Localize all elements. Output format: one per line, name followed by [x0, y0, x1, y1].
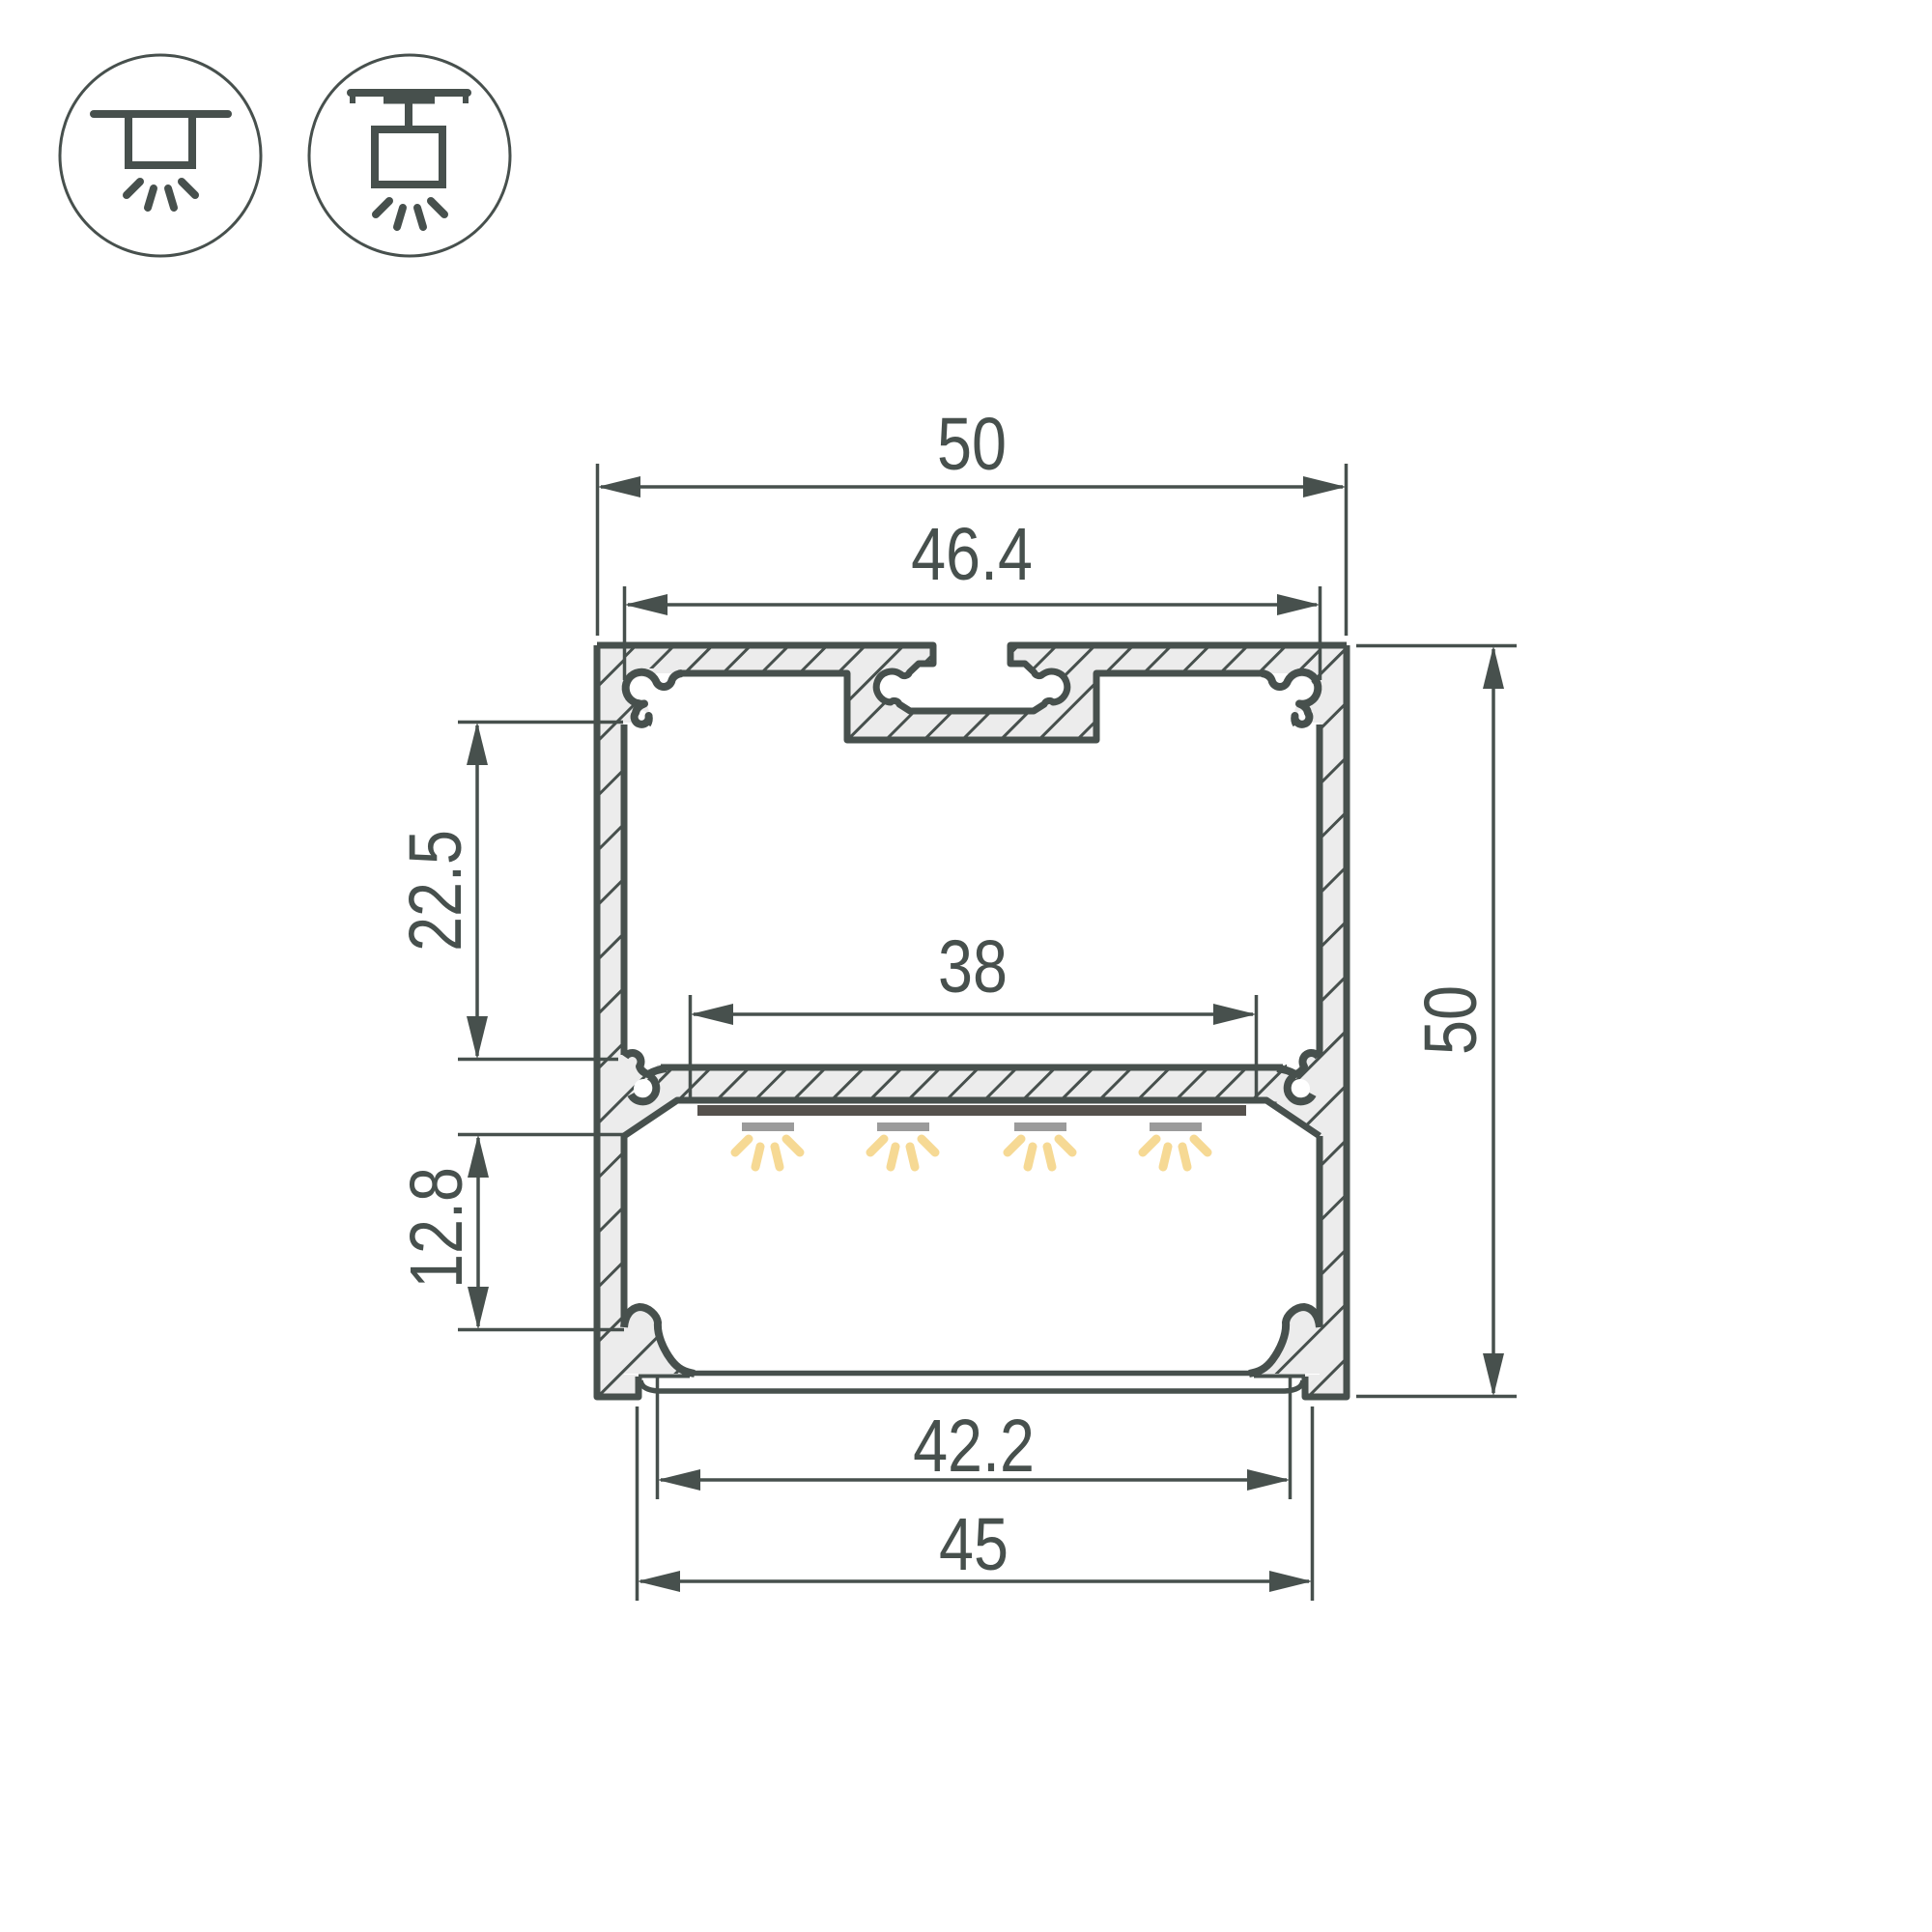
svg-text:45: 45	[939, 1504, 1009, 1587]
svg-text:50: 50	[937, 404, 1007, 487]
svg-text:12.8: 12.8	[396, 1167, 479, 1289]
svg-text:42.2: 42.2	[913, 1406, 1035, 1489]
svg-text:38: 38	[938, 926, 1008, 1009]
svg-text:46.4: 46.4	[911, 514, 1033, 597]
svg-text:22.5: 22.5	[395, 830, 478, 952]
svg-text:50: 50	[1410, 985, 1493, 1055]
